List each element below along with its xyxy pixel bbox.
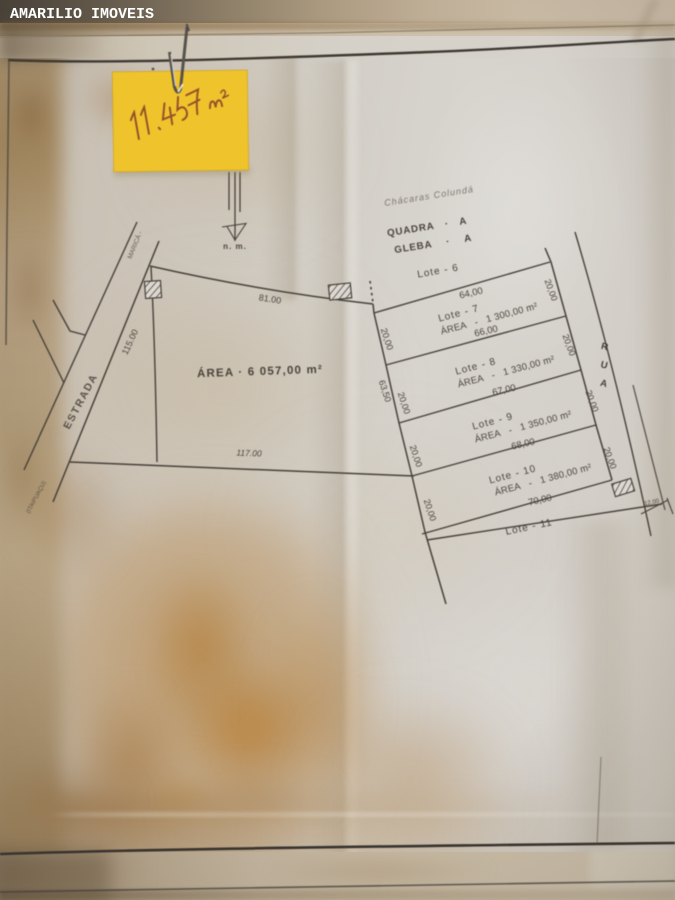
svg-text:68,00: 68,00 (510, 436, 536, 452)
svg-text:20,00: 20,00 (408, 444, 424, 469)
svg-text:63,50: 63,50 (377, 379, 393, 404)
svg-text:U: U (599, 359, 608, 371)
svg-text:20,00: 20,00 (422, 498, 438, 523)
svg-text:ÁREA · 6 057,00 m²: ÁREA · 6 057,00 m² (197, 363, 323, 380)
svg-text:20,00: 20,00 (583, 389, 600, 414)
svg-text:n. m.: n. m. (223, 242, 247, 251)
svg-text:115.00: 115.00 (120, 328, 140, 357)
svg-text:81.00: 81.00 (258, 292, 282, 305)
svg-text:ESTRADA: ESTRADA (61, 372, 100, 432)
svg-text:67,00: 67,00 (491, 382, 517, 398)
svg-text:(ITAIPUAÇU): (ITAIPUAÇU) (26, 480, 48, 514)
svg-text:20,00: 20,00 (396, 391, 412, 416)
svg-text:117.00: 117.00 (236, 448, 262, 459)
svg-text:70,00: 70,00 (527, 492, 553, 508)
svg-text:Lote - 11: Lote - 11 (505, 517, 554, 538)
svg-text:20,00: 20,00 (560, 333, 577, 358)
svg-text:Lote - 6: Lote - 6 (416, 262, 459, 280)
svg-text:MARICÁ -: MARICÁ - (125, 230, 144, 260)
svg-text:Chácaras Colundá: Chácaras Colundá (384, 184, 475, 208)
svg-text:20,00: 20,00 (601, 446, 618, 471)
svg-text:A: A (599, 378, 608, 390)
